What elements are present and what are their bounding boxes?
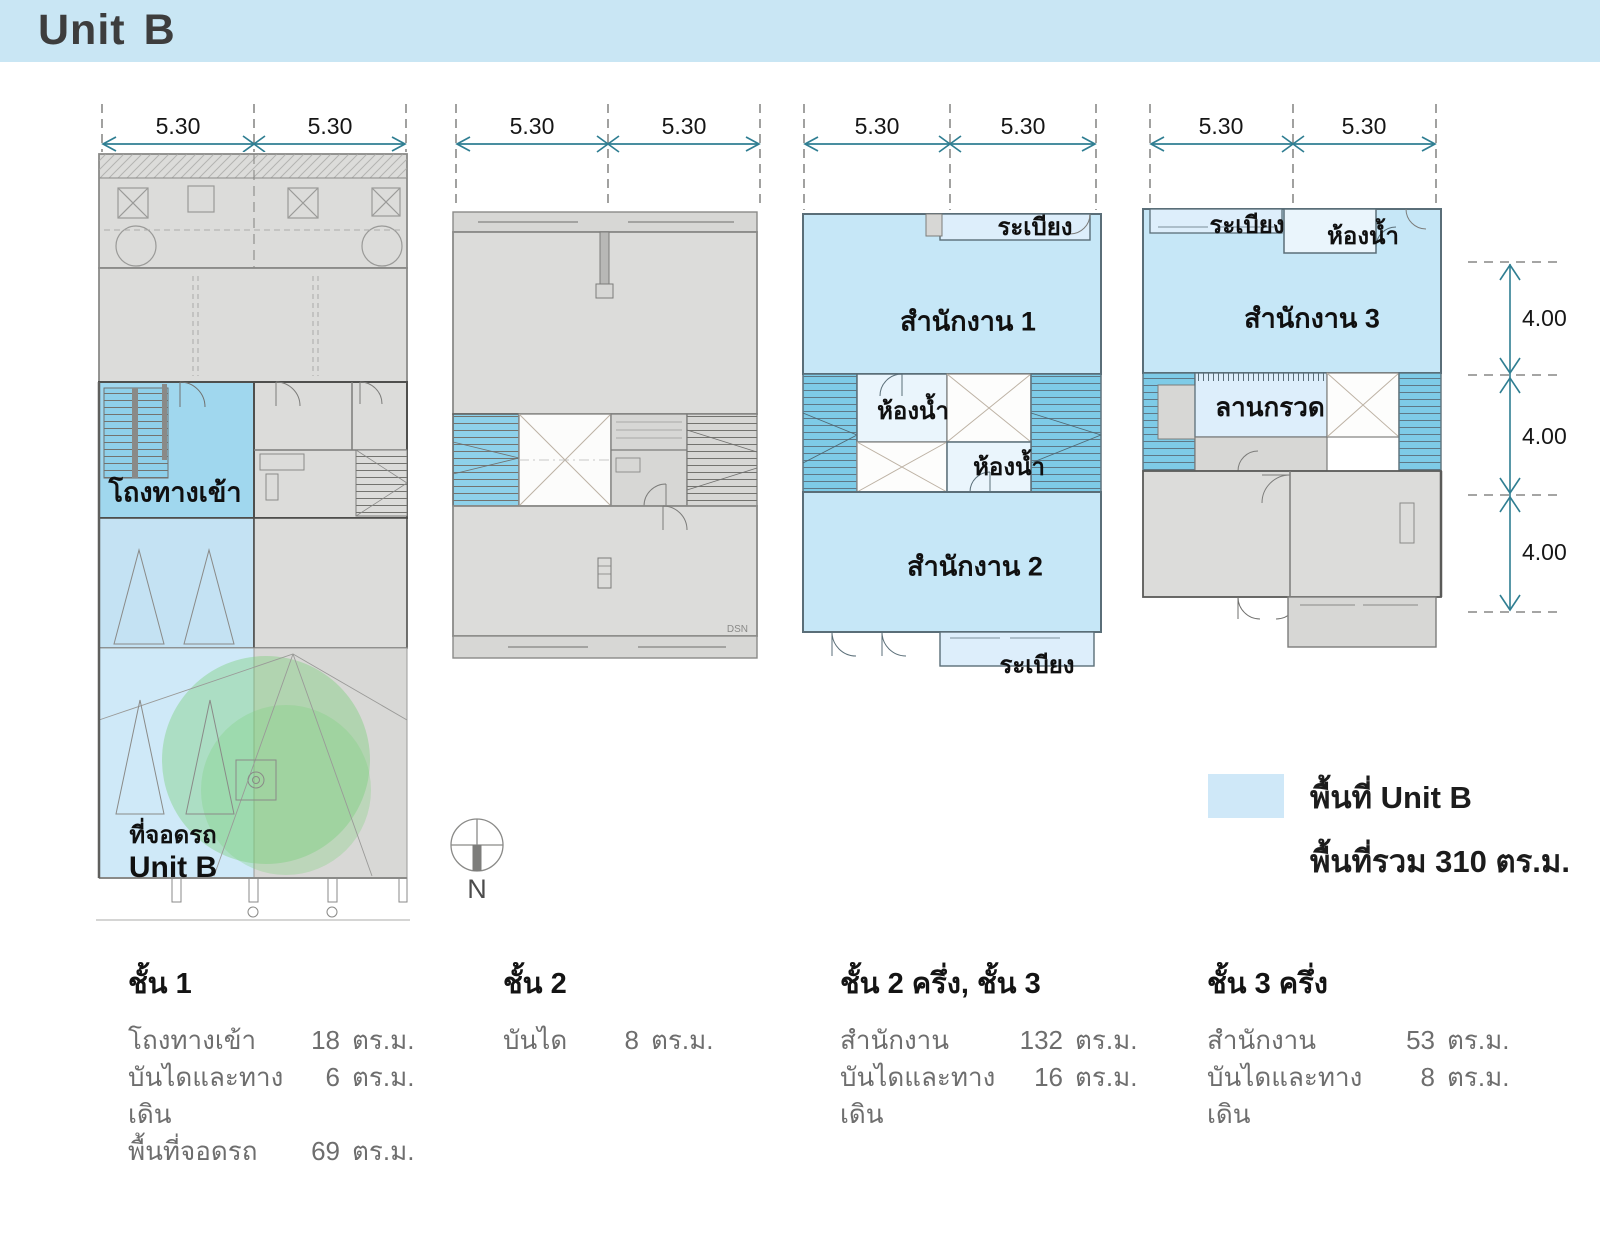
dimension-line-plan1: 5.30 5.30 xyxy=(86,104,422,152)
floor-plan-3 xyxy=(798,208,1106,678)
stairs xyxy=(356,450,407,516)
floor-plan-2: DSN xyxy=(448,206,762,666)
landscape-green-circle xyxy=(201,705,371,875)
room-label-office-3: สำนักงาน 3 xyxy=(1244,306,1380,333)
covered-parking-unitb xyxy=(99,518,254,648)
interior-zone xyxy=(99,268,407,382)
floor-summary-4: ชั้น 3 ครึ่ง สำนักงาน 53 ตร.ม. บันไดและท… xyxy=(1207,966,1537,1133)
row-label: บันไดและทางเดิน xyxy=(840,1059,1013,1133)
floor-title: ชั้น 1 xyxy=(128,966,458,1002)
row-label: บันไดและทางเดิน xyxy=(1207,1059,1397,1133)
dimension-chain-right: 4.00 4.00 4.00 xyxy=(1452,248,1598,628)
page-title-unit: Unit xyxy=(38,6,126,54)
stairs-unitb xyxy=(453,414,519,506)
row-label: บันไดและทางเดิน xyxy=(128,1059,310,1133)
row-label: สำนักงาน xyxy=(1207,1022,1397,1059)
void-x xyxy=(519,414,611,506)
row-area: 53 xyxy=(1397,1022,1435,1059)
watermark: DSN xyxy=(727,624,748,635)
row-unit: ตร.ม. xyxy=(651,1022,833,1059)
dim-width-label: 5.30 xyxy=(1001,113,1046,139)
row-area: 16 xyxy=(1013,1059,1063,1133)
floor-rows: สำนักงาน 53 ตร.ม. บันไดและทางเดิน 8 ตร.ม… xyxy=(1207,1022,1537,1133)
row-unit: ตร.ม. xyxy=(352,1022,458,1059)
row-unit: ตร.ม. xyxy=(352,1059,458,1133)
row-area: 8 xyxy=(1397,1059,1435,1133)
row-label: บันได xyxy=(503,1022,613,1059)
dim-width-label: 5.30 xyxy=(855,113,900,139)
row-unit: ตร.ม. xyxy=(1075,1022,1170,1059)
row-unit: ตร.ม. xyxy=(1075,1059,1170,1133)
dim-width-label: 5.30 xyxy=(510,113,555,139)
legend-total-label: พื้นที่รวม 310 ตร.ม. xyxy=(1310,836,1570,886)
dim-height-label: 4.00 xyxy=(1522,539,1567,565)
floor-rows: สำนักงาน 132 ตร.ม. บันไดและทางเดิน 16 ตร… xyxy=(840,1022,1170,1133)
row-area: 8 xyxy=(613,1022,639,1059)
room-label-balcony-top: ระเบียง xyxy=(998,216,1073,240)
north-indicator: N xyxy=(446,812,508,904)
header-banner: UnitB xyxy=(0,0,1600,62)
row-unit: ตร.ม. xyxy=(352,1133,458,1170)
page-title-b: B xyxy=(144,6,176,54)
row-area: 69 xyxy=(310,1133,340,1170)
floor-plan-1 xyxy=(94,148,412,928)
page-title: UnitB xyxy=(38,6,176,55)
void-x xyxy=(857,442,947,492)
room-label-gravel-court: ลานกรวด xyxy=(1215,394,1325,420)
service-core xyxy=(611,414,687,506)
door-arc xyxy=(832,632,906,656)
service-room xyxy=(1195,437,1327,471)
floor-rows: บันได 8 ตร.ม. xyxy=(503,1022,833,1059)
room-label-office-2: สำนักงาน 2 xyxy=(907,554,1043,581)
north-label: N xyxy=(467,874,487,904)
room-label-balcony: ระเบียง xyxy=(1210,214,1285,238)
dim-width-label: 5.30 xyxy=(1199,113,1244,139)
row-label: พื้นที่จอดรถ xyxy=(128,1133,310,1170)
room-label-bathroom: ห้องน้ำ xyxy=(1327,225,1399,249)
legend-area-label: พื้นที่ Unit B xyxy=(1310,772,1472,822)
row-unit: ตร.ม. xyxy=(1447,1022,1537,1059)
floor-title: ชั้น 2 xyxy=(503,966,833,1002)
row-label: สำนักงาน xyxy=(840,1022,1013,1059)
dim-width-label: 5.30 xyxy=(308,113,353,139)
row-area: 132 xyxy=(1013,1022,1063,1059)
row-area: 6 xyxy=(310,1059,340,1133)
floor-summary-3: ชั้น 2 ครึ่ง, ชั้น 3 สำนักงาน 132 ตร.ม. … xyxy=(840,966,1170,1133)
room-label-bathroom-1: ห้องน้ำ xyxy=(877,400,949,424)
stairs-unitb xyxy=(1143,373,1195,471)
page: UnitB 5.30 5.30 5.30 5.30 5.30 5.30 5.30… xyxy=(0,0,1600,1236)
floor-plan-4 xyxy=(1138,203,1446,659)
room-label-parking: ที่จอดรถ xyxy=(129,824,216,848)
stairs-unitb xyxy=(803,374,857,492)
room-label-office-1: สำนักงาน 1 xyxy=(900,309,1036,336)
lower-rooms xyxy=(1143,471,1441,597)
row-unit: ตร.ม. xyxy=(1447,1059,1537,1133)
floor-title: ชั้น 2 ครึ่ง, ชั้น 3 xyxy=(840,966,1170,1002)
floor-title: ชั้น 3 ครึ่ง xyxy=(1207,966,1537,1002)
legend-swatch xyxy=(1208,774,1284,818)
dim-width-label: 5.30 xyxy=(156,113,201,139)
dim-width-label: 5.30 xyxy=(662,113,707,139)
dimension-line-plan3: 5.30 5.30 xyxy=(790,104,1114,210)
stairs-unitb xyxy=(1399,373,1441,471)
lower-hall xyxy=(453,506,757,636)
stairs xyxy=(687,414,757,506)
void-x xyxy=(947,374,1031,442)
dim-height-label: 4.00 xyxy=(1522,305,1567,331)
dim-width-label: 5.30 xyxy=(1342,113,1387,139)
void-x xyxy=(1327,373,1399,437)
floor-rows: โถงทางเข้า 18 ตร.ม. บันไดและทางเดิน 6 ตร… xyxy=(128,1022,458,1170)
dimension-line-plan4: 5.30 5.30 xyxy=(1136,104,1454,205)
room-label-entrance-hall: โถงทางเข้า xyxy=(108,480,241,507)
stairs xyxy=(104,388,168,478)
room-label-balcony-bottom: ระเบียง xyxy=(1000,654,1075,678)
roof-hatch-band xyxy=(99,154,407,178)
dim-height-label: 4.00 xyxy=(1522,423,1567,449)
dimension-line-plan2: 5.30 5.30 xyxy=(440,104,776,208)
floor-summary-2: ชั้น 2 บันได 8 ตร.ม. xyxy=(503,966,833,1059)
row-area: 18 xyxy=(310,1022,340,1059)
floor-summary-1: ชั้น 1 โถงทางเข้า 18 ตร.ม. บันไดและทางเด… xyxy=(128,966,458,1170)
row-label: โถงทางเข้า xyxy=(128,1022,310,1059)
room-label-unit-b: Unit B xyxy=(129,853,217,883)
room-label-bathroom-2: ห้องน้ำ xyxy=(973,456,1045,480)
